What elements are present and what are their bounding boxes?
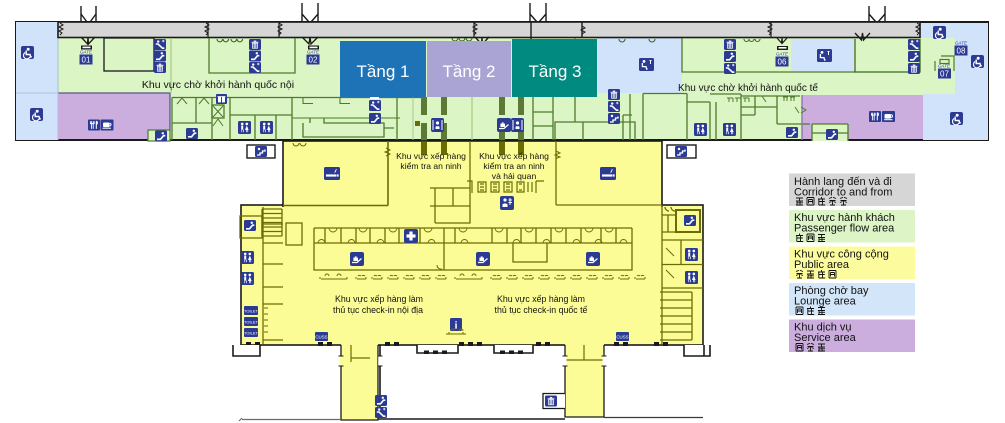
svg-text:01: 01 [82, 56, 91, 65]
svg-text:Tầng 3: Tầng 3 [529, 62, 582, 81]
svg-text:Lounge area: Lounge area [794, 296, 857, 308]
svg-text:Tầng 2: Tầng 2 [443, 62, 496, 81]
svg-text:Khu vực xếp hàng làm: Khu vực xếp hàng làm [335, 294, 423, 304]
svg-text:Khu vực xếp hàng làm: Khu vực xếp hàng làm [497, 294, 585, 304]
svg-text:Khu vực xếp hàng: Khu vực xếp hàng [396, 151, 466, 161]
svg-text:Khu vực chờ khởi hành quốc nội: Khu vực chờ khởi hành quốc nội [142, 79, 294, 91]
svg-text:Public area: Public area [794, 259, 850, 271]
svg-text:thủ tục check-in quốc tế: thủ tục check-in quốc tế [495, 305, 588, 315]
svg-text:Khu vực chờ khởi hành quốc tế: Khu vực chờ khởi hành quốc tế [678, 82, 818, 94]
svg-text:Tầng 1: Tầng 1 [357, 62, 410, 81]
svg-text:06: 06 [778, 58, 787, 67]
svg-text:GATE: GATE [955, 41, 968, 46]
svg-text:GATE: GATE [938, 64, 951, 69]
svg-text:07: 07 [940, 70, 949, 79]
svg-text:GATE: GATE [80, 50, 93, 55]
svg-text:GATE: GATE [307, 50, 320, 55]
svg-text:Khu vực xếp hàng: Khu vực xếp hàng [479, 151, 549, 161]
svg-text:kiểm tra an ninh: kiểm tra an ninh [400, 161, 461, 171]
svg-text:02: 02 [309, 56, 318, 65]
svg-text:08: 08 [957, 47, 966, 56]
svg-text:kiểm tra an ninh: kiểm tra an ninh [483, 161, 544, 171]
svg-text:Passenger flow area: Passenger flow area [794, 223, 895, 235]
svg-text:thủ tục check-in nội địa: thủ tục check-in nội địa [333, 305, 423, 315]
svg-text:Corridor to and from: Corridor to and from [794, 187, 892, 199]
svg-text:và hải quan: và hải quan [492, 171, 537, 181]
svg-text:Service area: Service area [794, 332, 857, 344]
svg-text:GATE: GATE [776, 52, 789, 57]
